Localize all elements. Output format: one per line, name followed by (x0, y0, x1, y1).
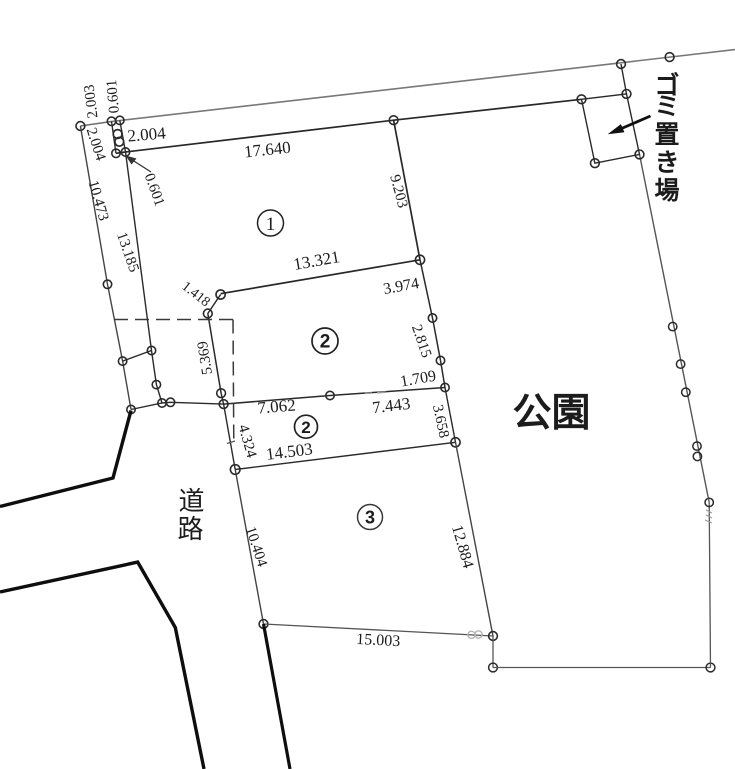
svg-text:置: 置 (654, 121, 679, 149)
svg-text:場: 場 (654, 177, 679, 205)
svg-text:7.062: 7.062 (257, 395, 297, 417)
svg-text:2: 2 (320, 332, 331, 353)
svg-text:道: 道 (178, 486, 204, 516)
svg-text:2: 2 (301, 418, 310, 437)
svg-text:公園: 公園 (512, 392, 590, 435)
svg-text:ミ: ミ (654, 93, 679, 121)
svg-text:2.004: 2.004 (127, 123, 167, 145)
svg-text:0.601: 0.601 (104, 79, 123, 114)
svg-text:路: 路 (177, 514, 203, 544)
svg-text:15.003: 15.003 (356, 631, 401, 650)
svg-text:3: 3 (365, 508, 375, 528)
svg-text:き: き (654, 149, 679, 177)
svg-text:1: 1 (266, 214, 276, 235)
